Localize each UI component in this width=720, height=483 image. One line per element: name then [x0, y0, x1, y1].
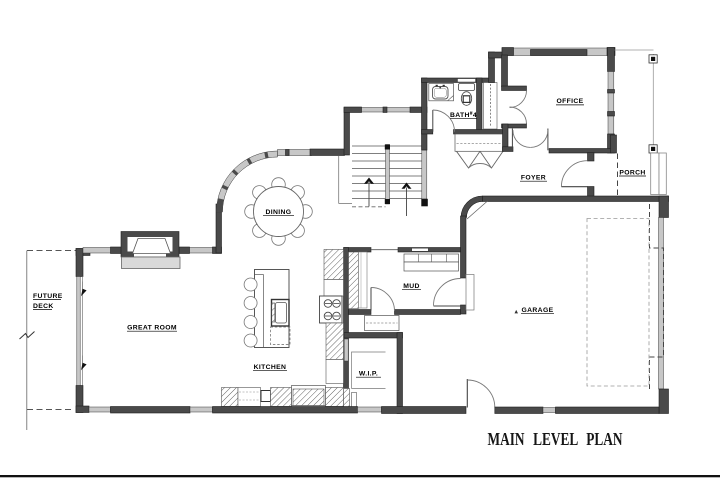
svg-text:W.I.P.: W.I.P.: [359, 371, 378, 378]
svg-text:OFFICE: OFFICE: [556, 98, 583, 105]
svg-text:KITCHEN: KITCHEN: [254, 364, 287, 371]
svg-text:FUTURE: FUTURE: [33, 293, 63, 300]
svg-text:GREAT ROOM: GREAT ROOM: [127, 325, 177, 332]
svg-text:DECK: DECK: [33, 303, 54, 310]
svg-text:PORCH: PORCH: [619, 169, 645, 176]
svg-text:GARAGE: GARAGE: [522, 307, 554, 314]
svg-text:MUD: MUD: [403, 283, 420, 290]
svg-text:DINING: DINING: [266, 209, 292, 216]
svg-text:MAIN LEVEL PLAN: MAIN LEVEL PLAN: [488, 429, 623, 449]
svg-text:FOYER: FOYER: [521, 175, 546, 182]
svg-text:BATH#4: BATH#4: [450, 111, 477, 119]
